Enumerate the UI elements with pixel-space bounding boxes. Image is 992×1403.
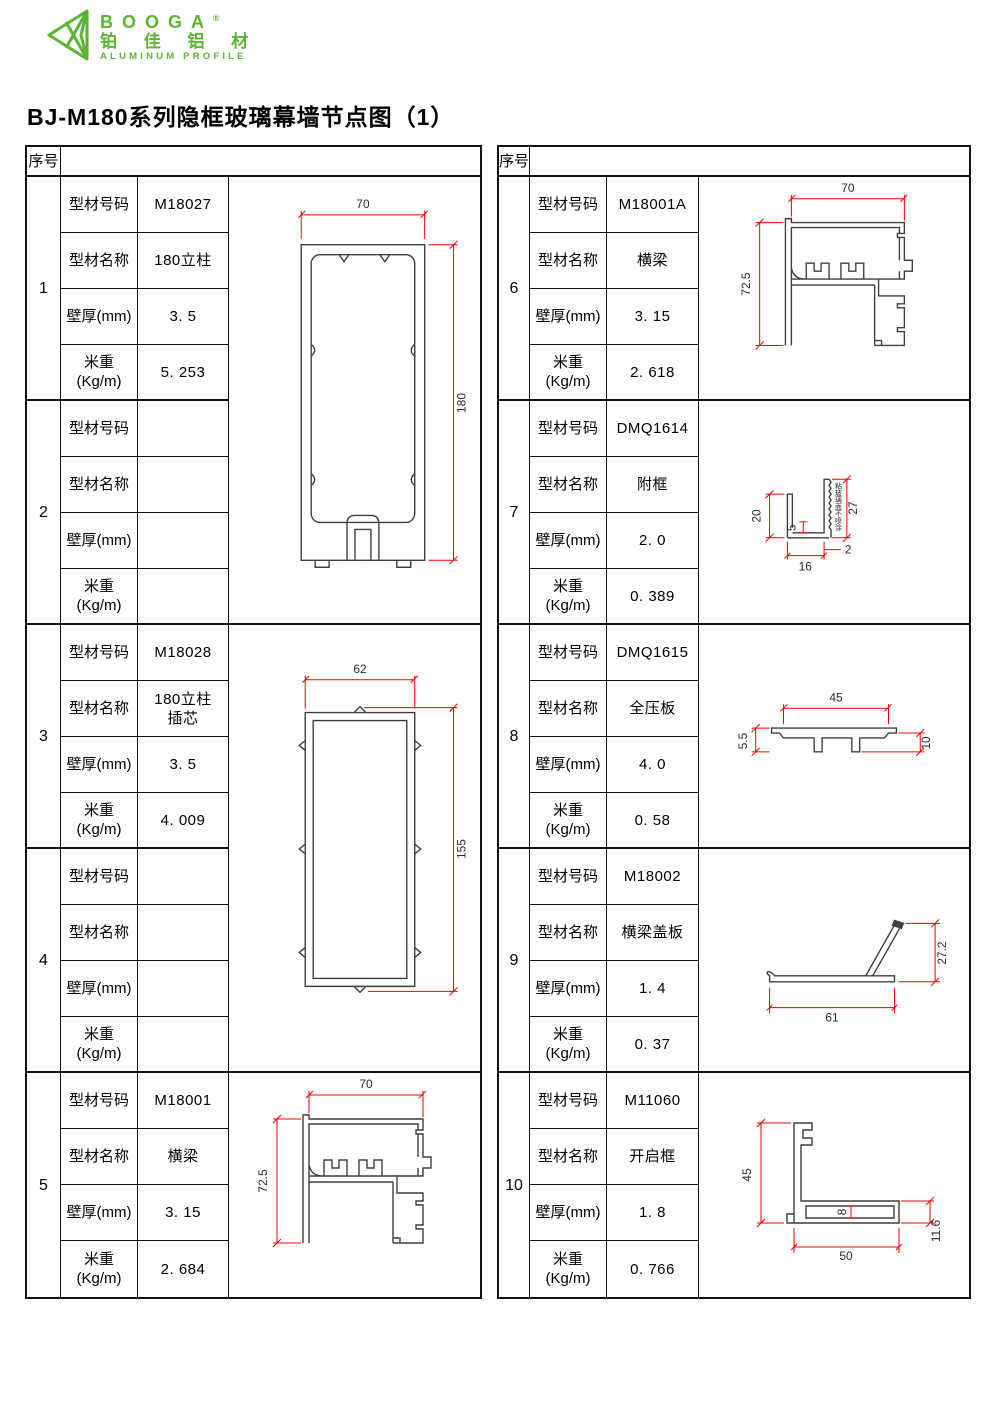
- thickness-value: 3. 15: [138, 1185, 229, 1241]
- dim-label: 11.6: [929, 1219, 943, 1242]
- dim-label: 20: [750, 509, 764, 523]
- name-value: 180立柱: [138, 233, 229, 289]
- drawing-beam-m18001: 70 72.5: [229, 1073, 480, 1297]
- field-label-weight: 米重 (Kg/m): [61, 1241, 138, 1297]
- dim-label: 45: [740, 1168, 754, 1182]
- thickness-value: 3. 5: [138, 289, 229, 345]
- dim-label: 155: [455, 839, 469, 859]
- field-label-name: 型材名称: [61, 681, 138, 737]
- serial-number: 7: [499, 401, 530, 625]
- name-value: 横梁盖板: [607, 905, 699, 961]
- serial-number: 8: [499, 625, 530, 849]
- dim-label: 27.2: [935, 942, 949, 965]
- weight-value: 0. 389: [607, 569, 699, 625]
- dim-label: 72.5: [739, 272, 753, 296]
- field-label-thickness: 壁厚(mm): [61, 961, 138, 1017]
- field-label-code: 型材号码: [530, 401, 607, 457]
- serial-number: 1: [27, 177, 61, 401]
- name-value: 横梁: [607, 233, 699, 289]
- code-value: M18001A: [607, 177, 699, 233]
- field-label-code: 型材号码: [61, 1073, 138, 1129]
- name-value: 横梁: [138, 1129, 229, 1185]
- drawing-cell: 62 155: [229, 625, 480, 1073]
- field-label-code: 型材号码: [61, 849, 138, 905]
- dim-label: 8: [835, 1208, 849, 1215]
- weight-value: [138, 569, 229, 625]
- dim-label: 70: [359, 1077, 373, 1091]
- field-label-weight: 米重 (Kg/m): [530, 569, 607, 625]
- field-label-thickness: 壁厚(mm): [530, 1185, 607, 1241]
- field-label-weight: 米重 (Kg/m): [61, 569, 138, 625]
- field-label-code: 型材号码: [530, 625, 607, 681]
- weight-value: 5. 253: [138, 345, 229, 401]
- drawing-180-column: 70 180: [229, 177, 480, 623]
- drawing-cell: 45 5.5 10: [699, 625, 969, 849]
- code-value: M18002: [607, 849, 699, 905]
- drawing-cell: 70 72.5: [229, 1073, 480, 1297]
- field-label-code: 型材号码: [61, 177, 138, 233]
- field-label-name: 型材名称: [530, 1129, 607, 1185]
- weight-value: 4. 009: [138, 793, 229, 849]
- header-blank: [530, 147, 969, 177]
- drawing-cell: 70 72.5: [699, 177, 969, 401]
- code-value: M18027: [138, 177, 229, 233]
- name-value: 附框: [607, 457, 699, 513]
- field-label-thickness: 壁厚(mm): [530, 961, 607, 1017]
- drawing-cell: 45 8 50 11.6: [699, 1073, 969, 1297]
- weight-value: 2. 684: [138, 1241, 229, 1297]
- serial-number: 2: [27, 401, 61, 625]
- thickness-value: 3. 5: [138, 737, 229, 793]
- registered-mark: ®: [213, 13, 220, 23]
- name-value: [138, 905, 229, 961]
- field-label-thickness: 壁厚(mm): [61, 513, 138, 569]
- dim-label: 62: [353, 662, 367, 676]
- field-label-name: 型材名称: [61, 1129, 138, 1185]
- dim-label: 45: [829, 690, 843, 704]
- name-value: 全压板: [607, 681, 699, 737]
- field-label-name: 型材名称: [61, 905, 138, 961]
- weight-value: 0. 766: [607, 1241, 699, 1297]
- drawing-cell: 20 5 16 2 27 粘玻璃面不喷涂: [699, 401, 969, 625]
- dim-label: 5.5: [736, 732, 750, 749]
- serial-number: 6: [499, 177, 530, 401]
- field-label-name: 型材名称: [530, 457, 607, 513]
- weight-value: 2. 618: [607, 345, 699, 401]
- field-label-weight: 米重 (Kg/m): [61, 345, 138, 401]
- field-label-name: 型材名称: [530, 681, 607, 737]
- serial-header: 序号: [499, 147, 530, 177]
- serial-header: 序号: [27, 147, 61, 177]
- logo: BOOGA® 铂 佳 铝 材 ALUMINUM PROFILE: [44, 8, 259, 63]
- logo-triangle-icon: [44, 8, 90, 62]
- field-label-weight: 米重 (Kg/m): [61, 793, 138, 849]
- name-value: [138, 457, 229, 513]
- thickness-value: [138, 513, 229, 569]
- field-label-weight: 米重 (Kg/m): [530, 793, 607, 849]
- dim-label: 2: [845, 543, 852, 557]
- dim-label: 70: [841, 181, 855, 195]
- name-value: 开启框: [607, 1129, 699, 1185]
- drawing-cell: 70 180: [229, 177, 480, 625]
- serial-number: 5: [27, 1073, 61, 1297]
- thickness-value: 2. 0: [607, 513, 699, 569]
- dim-label: 10: [919, 736, 933, 750]
- code-value: [138, 849, 229, 905]
- drawing-beam-m18001a: 70 72.5: [699, 177, 969, 399]
- field-label-code: 型材号码: [530, 177, 607, 233]
- header-blank: [61, 147, 480, 177]
- thickness-value: 4. 0: [607, 737, 699, 793]
- brand-subtitle: ALUMINUM PROFILE: [100, 51, 259, 63]
- drawing-subframe: 20 5 16 2 27 粘玻璃面不喷涂: [699, 401, 969, 623]
- dim-label: 72.5: [256, 1169, 270, 1193]
- field-label-name: 型材名称: [530, 233, 607, 289]
- code-value: M18028: [138, 625, 229, 681]
- thickness-value: 1. 4: [607, 961, 699, 1017]
- brand-name: BOOGA®: [100, 8, 259, 32]
- drawing-beam-cover: 61 27.2: [699, 849, 969, 1071]
- drawing-press-plate: 45 5.5 10: [699, 625, 969, 847]
- code-value: DMQ1614: [607, 401, 699, 457]
- dim-label: 50: [839, 1249, 853, 1263]
- code-value: M18001: [138, 1073, 229, 1129]
- field-label-thickness: 壁厚(mm): [61, 1185, 138, 1241]
- field-label-weight: 米重 (Kg/m): [530, 1241, 607, 1297]
- field-label-name: 型材名称: [61, 233, 138, 289]
- code-value: DMQ1615: [607, 625, 699, 681]
- dim-label: 180: [455, 393, 469, 413]
- field-label-code: 型材号码: [530, 849, 607, 905]
- field-label-weight: 米重 (Kg/m): [530, 345, 607, 401]
- serial-number: 4: [27, 849, 61, 1073]
- dim-label: 5: [784, 524, 798, 531]
- field-label-weight: 米重 (Kg/m): [530, 1017, 607, 1073]
- page-title: BJ-M180系列隐框玻璃幕墙节点图（1）: [27, 98, 454, 132]
- thickness-value: 1. 8: [607, 1185, 699, 1241]
- drawing-cell: 61 27.2: [699, 849, 969, 1073]
- field-label-thickness: 壁厚(mm): [530, 513, 607, 569]
- drawing-vent-frame: 45 8 50 11.6: [699, 1073, 969, 1297]
- field-label-thickness: 壁厚(mm): [61, 289, 138, 345]
- weight-value: 0. 58: [607, 793, 699, 849]
- spec-table-left: 序号 1 型材号码 M18027 型材名称 180立柱 壁厚(mm) 3. 5 …: [25, 145, 482, 1299]
- serial-number: 3: [27, 625, 61, 849]
- serial-number: 10: [499, 1073, 530, 1297]
- field-label-code: 型材号码: [61, 625, 138, 681]
- brand-chinese: 铂 佳 铝 材: [100, 32, 259, 51]
- dim-label: 61: [825, 1010, 839, 1024]
- thickness-value: [138, 961, 229, 1017]
- weight-value: 0. 37: [607, 1017, 699, 1073]
- glass-face-note: 粘玻璃面不喷涂: [833, 481, 841, 531]
- field-label-code: 型材号码: [530, 1073, 607, 1129]
- thickness-value: 3. 15: [607, 289, 699, 345]
- drawing-180-insert: 62 155: [229, 625, 480, 1071]
- dim-label: 16: [799, 559, 813, 573]
- weight-value: [138, 1017, 229, 1073]
- code-value: M11060: [607, 1073, 699, 1129]
- code-value: [138, 401, 229, 457]
- name-value: 180立柱 插芯: [138, 681, 229, 737]
- dim-label: 27: [846, 501, 860, 514]
- spec-table-right: 序号 6 型材号码 M18001A 型材名称 横梁 壁厚(mm) 3. 15 米…: [497, 145, 971, 1299]
- field-label-name: 型材名称: [530, 905, 607, 961]
- dim-label: 70: [356, 197, 370, 211]
- field-label-thickness: 壁厚(mm): [530, 289, 607, 345]
- field-label-weight: 米重 (Kg/m): [61, 1017, 138, 1073]
- serial-number: 9: [499, 849, 530, 1073]
- field-label-code: 型材号码: [61, 401, 138, 457]
- field-label-thickness: 壁厚(mm): [61, 737, 138, 793]
- field-label-name: 型材名称: [61, 457, 138, 513]
- field-label-thickness: 壁厚(mm): [530, 737, 607, 793]
